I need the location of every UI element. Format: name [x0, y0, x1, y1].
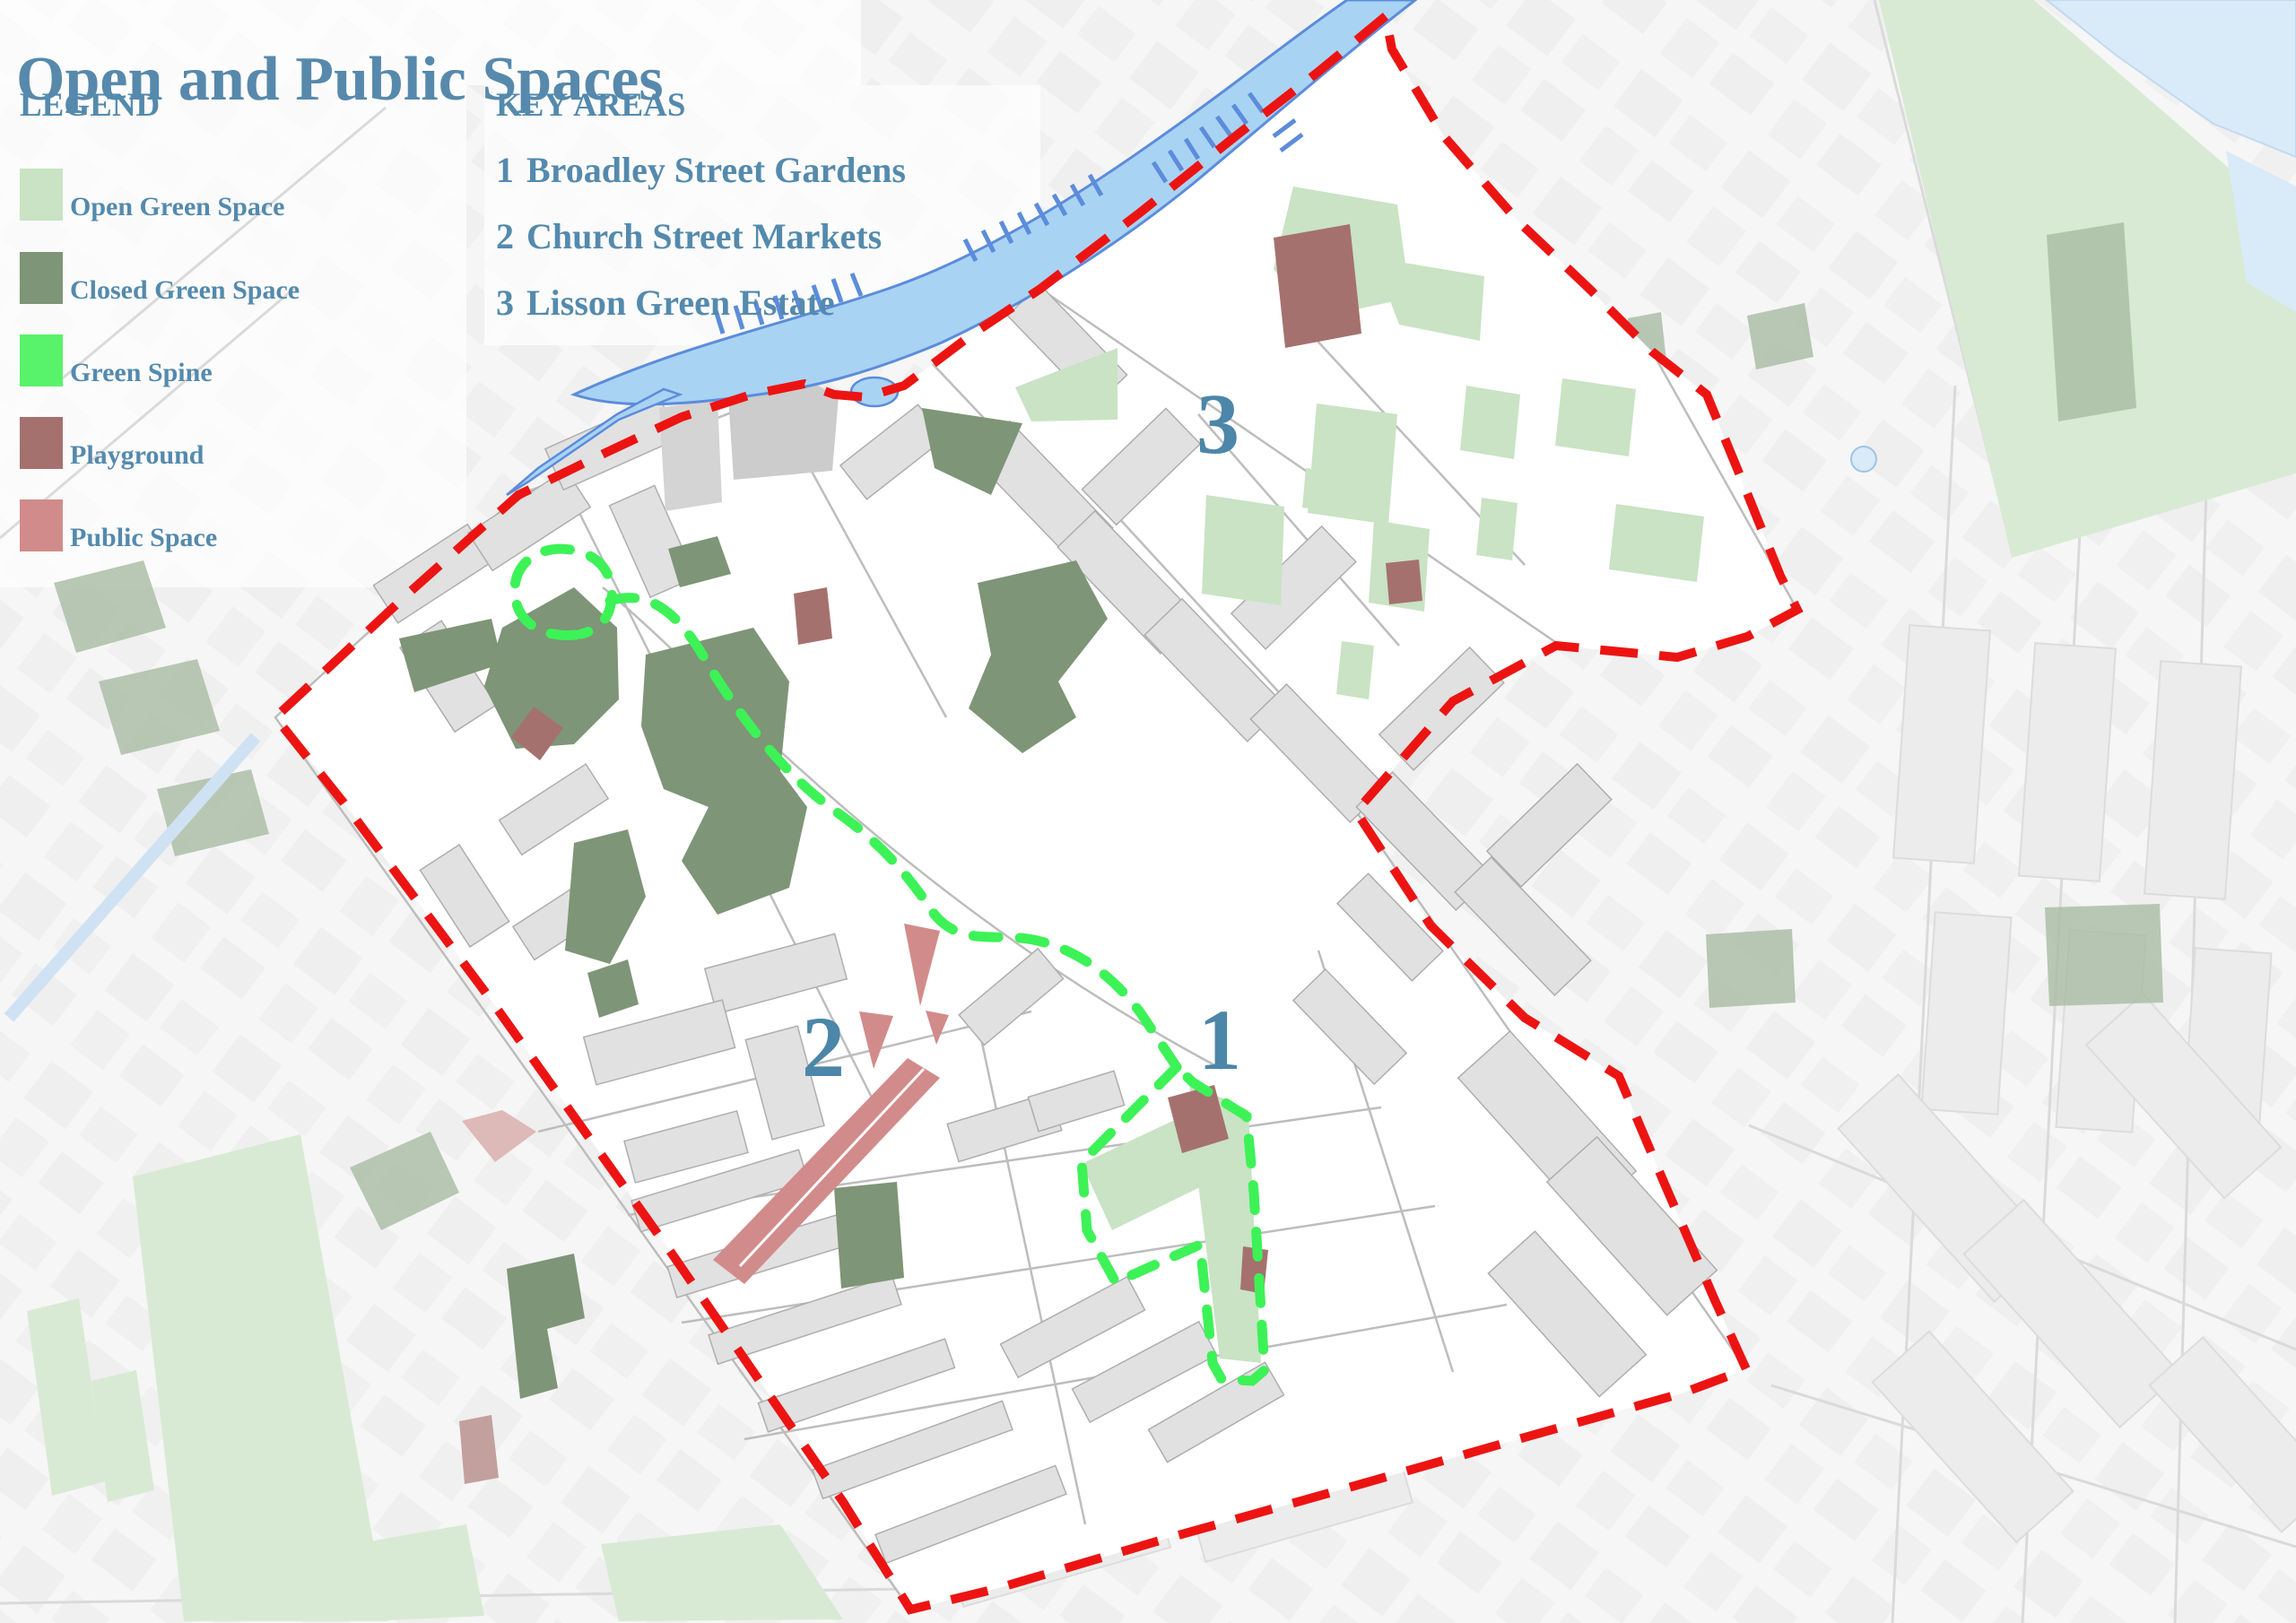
legend-item-green-spine: Green Spine — [20, 334, 213, 386]
legend-item-label: Green Spine — [70, 359, 213, 387]
key-area-number: 2 — [496, 216, 514, 256]
key-areas-heading: KEY AREAS — [496, 86, 906, 125]
legend-item-playground: Playground — [20, 417, 204, 469]
closed-green-swatch — [20, 252, 63, 304]
marker-1: 1 — [1198, 992, 1241, 1088]
legend-item-label: Open Green Space — [70, 193, 284, 221]
legend-item-public-space: Public Space — [20, 499, 217, 551]
key-area-name: Lisson Green Estate — [526, 282, 835, 323]
legend-item-label: Public Space — [70, 524, 217, 552]
open-green-swatch — [20, 169, 63, 221]
key-area-item-2: 2Church Street Markets — [496, 215, 906, 257]
legend-item-closed-green-space: Closed Green Space — [20, 252, 300, 304]
green-spine-swatch — [20, 334, 63, 386]
public-space-swatch — [20, 499, 63, 551]
key-area-number: 3 — [496, 282, 514, 323]
legend-item-label: Playground — [70, 441, 204, 470]
open-public-spaces-map-page: 3 2 1 Open and Public Spaces LEGEND Open… — [0, 0, 2296, 1623]
key-area-name: Broadley Street Gardens — [526, 150, 906, 190]
pond — [1851, 447, 1876, 472]
legend-item-label: Closed Green Space — [70, 276, 300, 305]
legend-heading: LEGEND — [20, 86, 441, 125]
legend-item-open-green-space: Open Green Space — [20, 169, 284, 221]
playground-swatch — [20, 417, 63, 469]
legend: LEGEND Open Green Space Closed Green Spa… — [20, 86, 441, 588]
key-areas: KEY AREAS 1Broadley Street Gardens 2Chur… — [496, 86, 906, 324]
key-area-item-1: 1Broadley Street Gardens — [496, 149, 906, 191]
key-area-item-3: 3Lisson Green Estate — [496, 282, 906, 324]
marker-3: 3 — [1196, 376, 1239, 472]
key-area-number: 1 — [496, 150, 514, 190]
key-area-name: Church Street Markets — [526, 216, 882, 256]
marker-2: 2 — [802, 999, 845, 1095]
